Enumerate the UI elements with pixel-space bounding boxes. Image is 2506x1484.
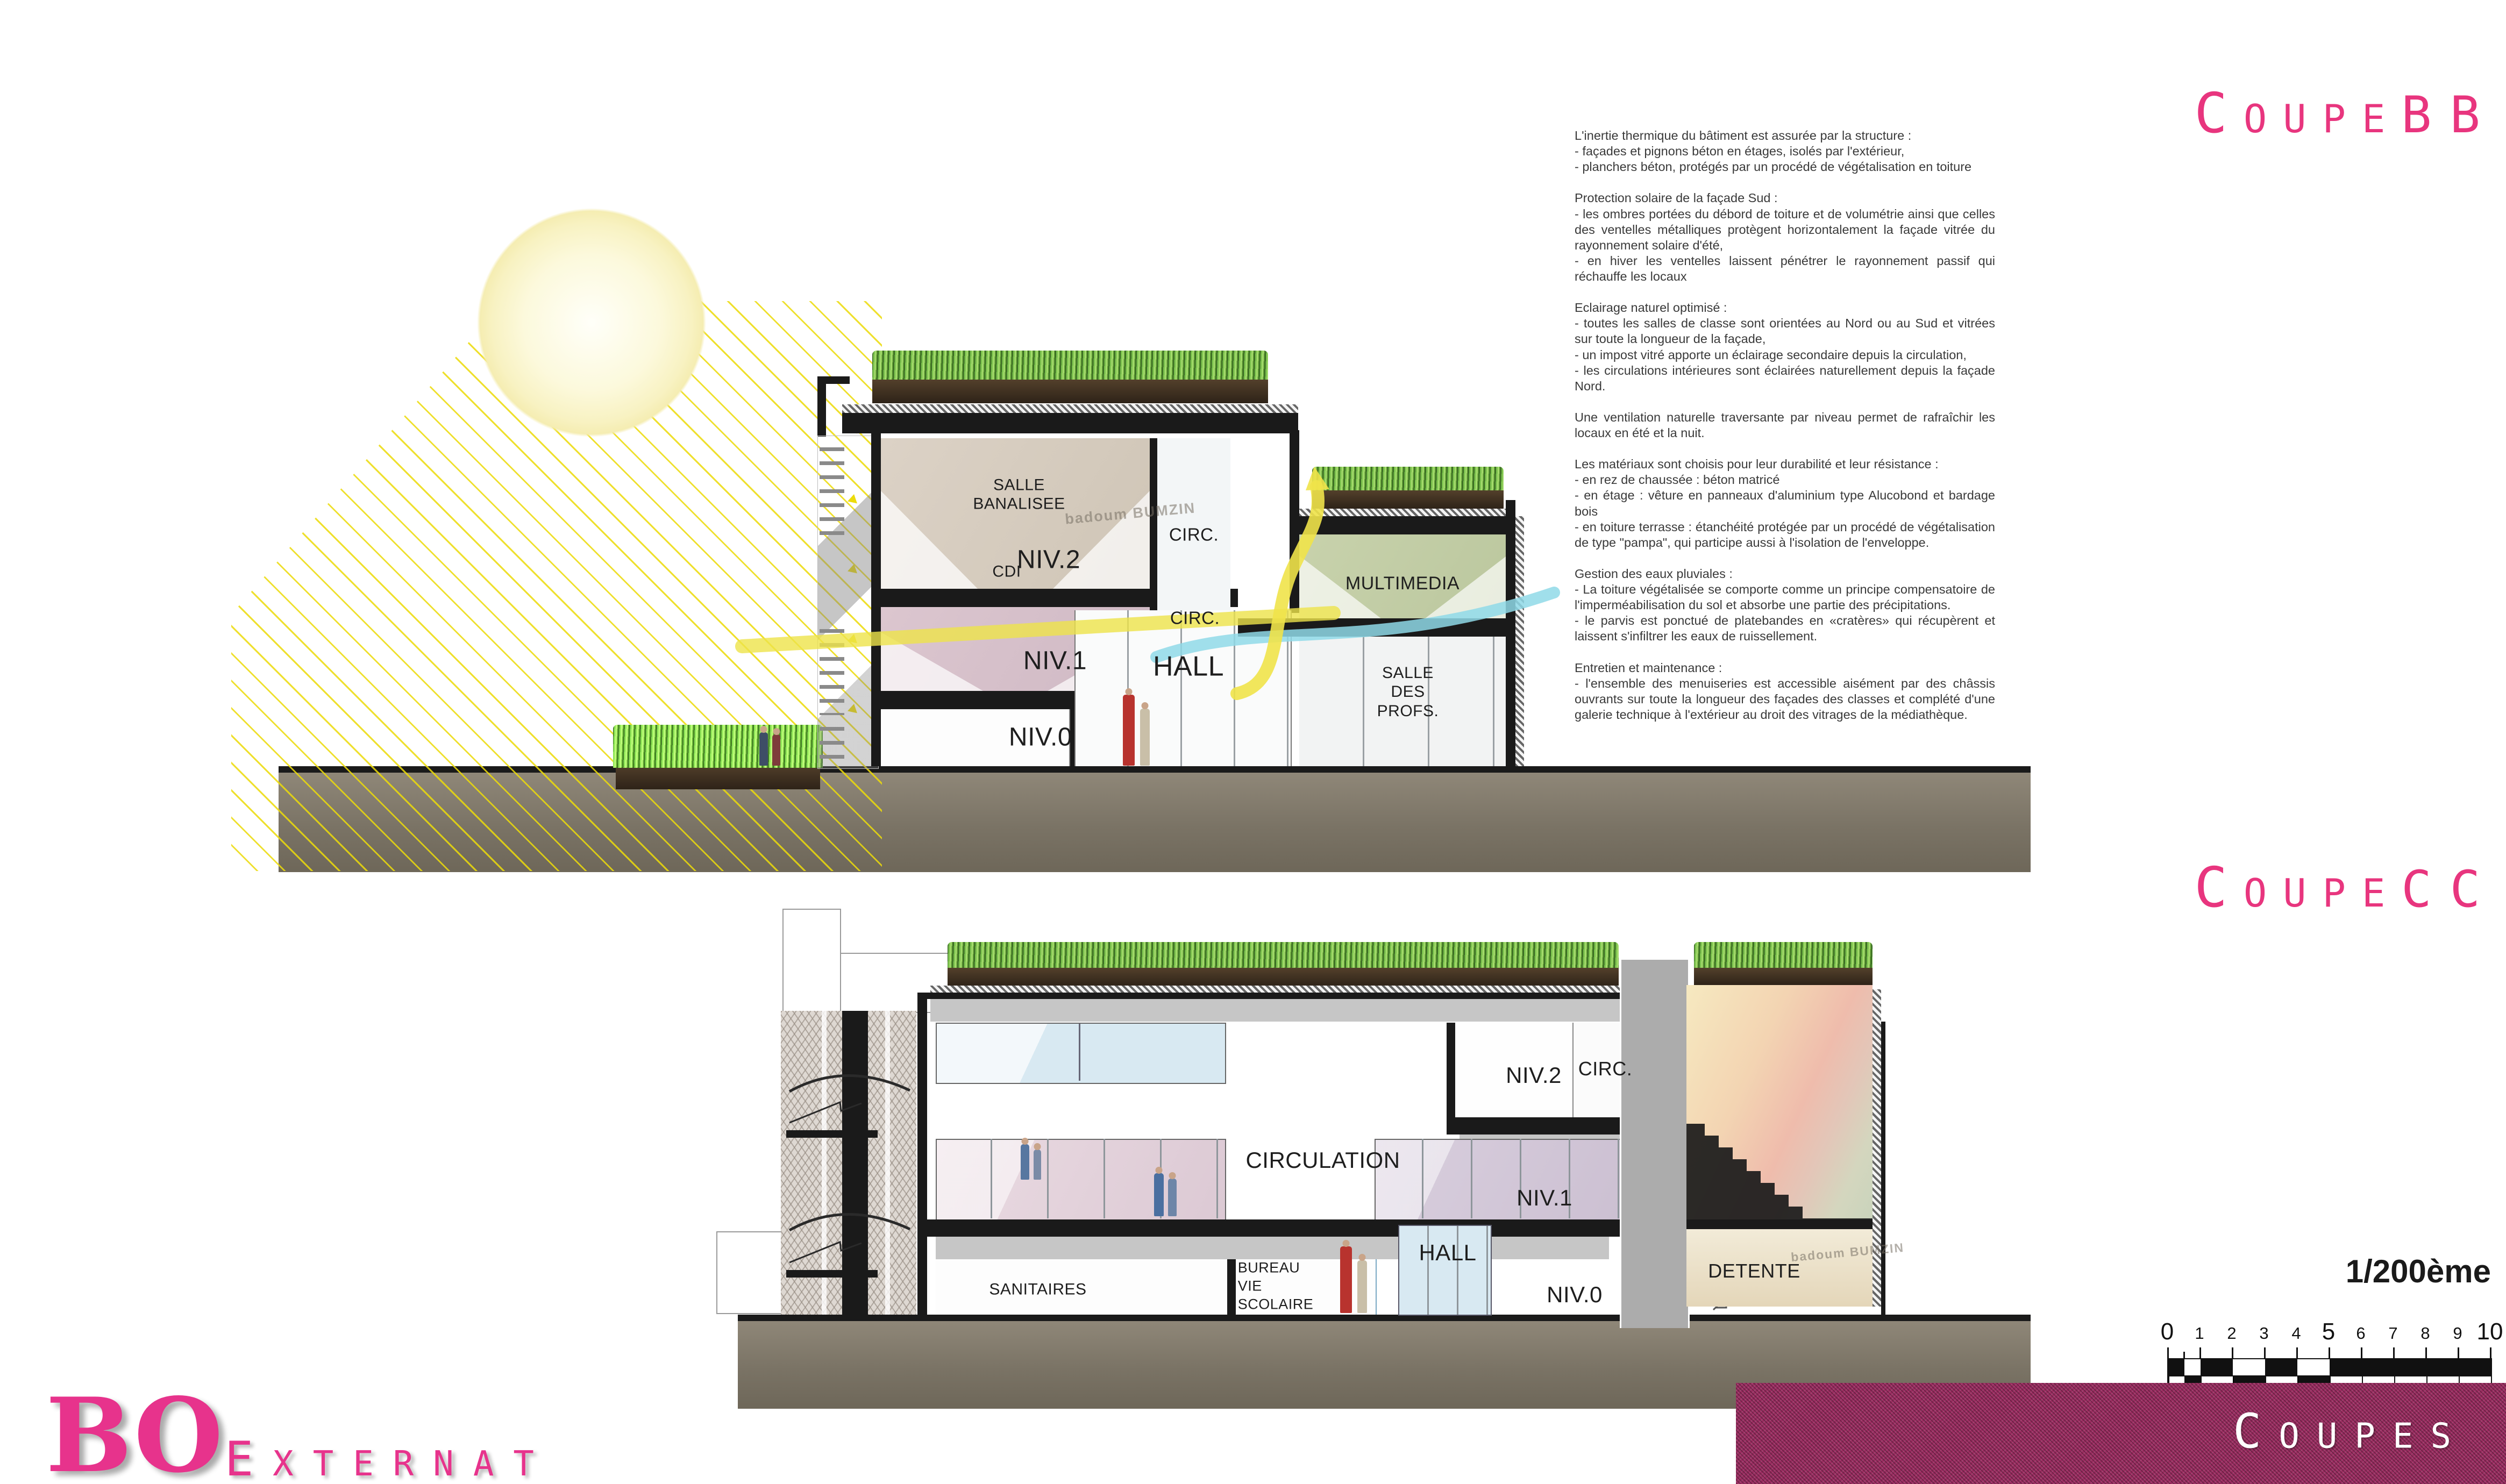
scale-number: 9	[2453, 1324, 2462, 1343]
note-paragraph: Gestion des eaux pluviales : - La toitur…	[1575, 566, 1995, 645]
project-name-word: Externat	[225, 1431, 553, 1484]
title-word: Coupe	[2194, 856, 2401, 920]
sheet-title-panel: Coupes	[1736, 1383, 2506, 1484]
people-figures	[1168, 1179, 1177, 1216]
people-figures	[1021, 1144, 1029, 1180]
label-hall-cc: HALL	[1419, 1239, 1476, 1266]
title-coupe-bb: CoupeBB	[2194, 82, 2498, 146]
people-figures	[1154, 1173, 1164, 1216]
scale-number: 2	[2227, 1324, 2236, 1343]
roof-insulation-hatch-bb	[842, 404, 1298, 413]
label-circ-upper-bb: CIRC.	[1169, 525, 1219, 546]
roof-slab-bb	[842, 413, 1298, 433]
slab-band-niv1-cc	[936, 1237, 1609, 1259]
note-paragraph: Les matériaux sont choisis pour leur dur…	[1575, 456, 1995, 551]
label-multimedia: MULTIMEDIA	[1345, 573, 1460, 594]
slab-detente-cc	[1686, 1219, 1878, 1229]
label-niv0-bb: NIV.0	[1009, 723, 1072, 753]
label-detente: DETENTE	[1708, 1260, 1800, 1282]
sheet-title-word: Coupes	[2233, 1403, 2468, 1459]
scale-ratio-label: 1/200ème	[2346, 1253, 2491, 1290]
scale-number: 4	[2291, 1324, 2301, 1343]
title-suffix: BB	[2401, 86, 2498, 145]
ventilation-arrows-icon	[699, 457, 1667, 737]
impost-glazing-cc	[936, 1023, 1226, 1084]
green-roof-grass-cc	[948, 942, 1619, 971]
roof-overhang-post-bb	[817, 376, 826, 437]
label-niv0-cc: NIV.0	[1547, 1281, 1603, 1308]
label-circ-lower-bb: CIRC.	[1170, 608, 1220, 629]
glazing-niv1-right-mullions	[1375, 1139, 1620, 1218]
slab-niv1-cc	[917, 1219, 1620, 1237]
green-roof-soil-bb	[872, 380, 1268, 403]
scale-number: 7	[2388, 1324, 2397, 1343]
label-niv2-bb: NIV.2	[1017, 545, 1080, 576]
elevator-shaft	[1620, 960, 1690, 1328]
scale-number: 10	[2477, 1318, 2503, 1345]
wall-left-cc	[917, 999, 927, 1315]
scale-ticks	[2167, 1347, 2491, 1358]
scale-half-tick	[2183, 1352, 2185, 1358]
roof-hatch-cc	[930, 986, 1620, 993]
scale-bar-row-top	[2167, 1358, 2492, 1376]
note-paragraph: Entretien et maintenance : - l'ensemble …	[1575, 660, 1995, 723]
wall-sanitaires-bureau	[1227, 1259, 1236, 1315]
label-niv2-cc: NIV.2	[1506, 1062, 1562, 1089]
scale-number: 6	[2356, 1324, 2365, 1343]
label-niv1-bb: NIV.1	[1023, 646, 1087, 677]
impost-mullion	[1079, 1024, 1080, 1081]
label-salle-des-profs: SALLE DES PROFS.	[1377, 663, 1439, 720]
scale-number: 3	[2259, 1324, 2268, 1343]
roof-slab-cc	[917, 993, 1620, 999]
green-roof-soil-cc	[948, 968, 1619, 986]
scale-number: 0	[2161, 1318, 2174, 1345]
people-figures	[1034, 1150, 1041, 1180]
title-word: Coupe	[2194, 82, 2401, 146]
spiral-stair-flights-icon	[781, 1011, 916, 1315]
people-figures	[1140, 709, 1150, 766]
wall-niv2-left-cc	[1447, 1023, 1455, 1117]
title-suffix: CC	[2401, 860, 2498, 919]
design-notes: L'inertie thermique du bâtiment est assu…	[1575, 128, 1995, 738]
logo-bo: BO	[46, 1385, 223, 1484]
hall-glazed-door-cc	[1398, 1225, 1492, 1316]
ground-line-cc	[738, 1315, 2031, 1321]
label-cdi: CDI	[992, 562, 1021, 581]
scale-number: 1	[2195, 1324, 2204, 1343]
facade-hatch-right-cc	[1873, 989, 1881, 1307]
green-roof-grass-bb	[872, 351, 1268, 382]
roof-ceiling-band-cc	[930, 999, 1620, 1022]
people-figures	[1123, 695, 1135, 766]
note-paragraph: Protection solaire de la façade Sud : - …	[1575, 190, 1995, 284]
scale-number: 5	[2322, 1318, 2335, 1345]
label-salle-banalisee: SALLE BANALISEE	[973, 476, 1065, 514]
glazing-niv1-mullions	[936, 1139, 1224, 1218]
label-sanitaires: SANITAIRES	[989, 1280, 1086, 1298]
slab-niv2-cc	[1447, 1117, 1620, 1135]
people-figures	[772, 734, 780, 766]
note-paragraph: Eclairage naturel optimisé : - toutes le…	[1575, 300, 1995, 394]
green-roof-grass-right-cc	[1694, 942, 1873, 971]
note-paragraph: Une ventilation naturelle traversante pa…	[1575, 410, 1995, 441]
green-roof-soil-right-cc	[1694, 968, 1873, 985]
label-hall-bb: HALL	[1153, 650, 1224, 683]
people-figures	[759, 732, 768, 766]
presentation-board: SALLE BANALISEE NIV.2 CIRC. CDI NIV.1 CI…	[0, 0, 2506, 1484]
title-coupe-cc: CoupeCC	[2194, 856, 2498, 920]
label-circulation: CIRCULATION	[1245, 1147, 1400, 1174]
label-niv1-cc: NIV.1	[1517, 1185, 1572, 1211]
railing-outline-left	[716, 1231, 782, 1314]
scale-number: 8	[2420, 1324, 2430, 1343]
label-circ-cc: CIRC.	[1578, 1058, 1633, 1080]
people-figures	[1340, 1246, 1352, 1313]
sun-icon	[441, 172, 742, 473]
screen-outline-top	[782, 909, 841, 1013]
wall-right-cc	[1881, 1022, 1885, 1315]
note-paragraph: L'inertie thermique du bâtiment est assu…	[1575, 128, 1995, 175]
people-figures	[1357, 1260, 1367, 1313]
label-bureau-vie-scolaire: BUREAU VIE SCOLAIRE	[1238, 1259, 1314, 1313]
project-name: Externat	[225, 1431, 553, 1484]
